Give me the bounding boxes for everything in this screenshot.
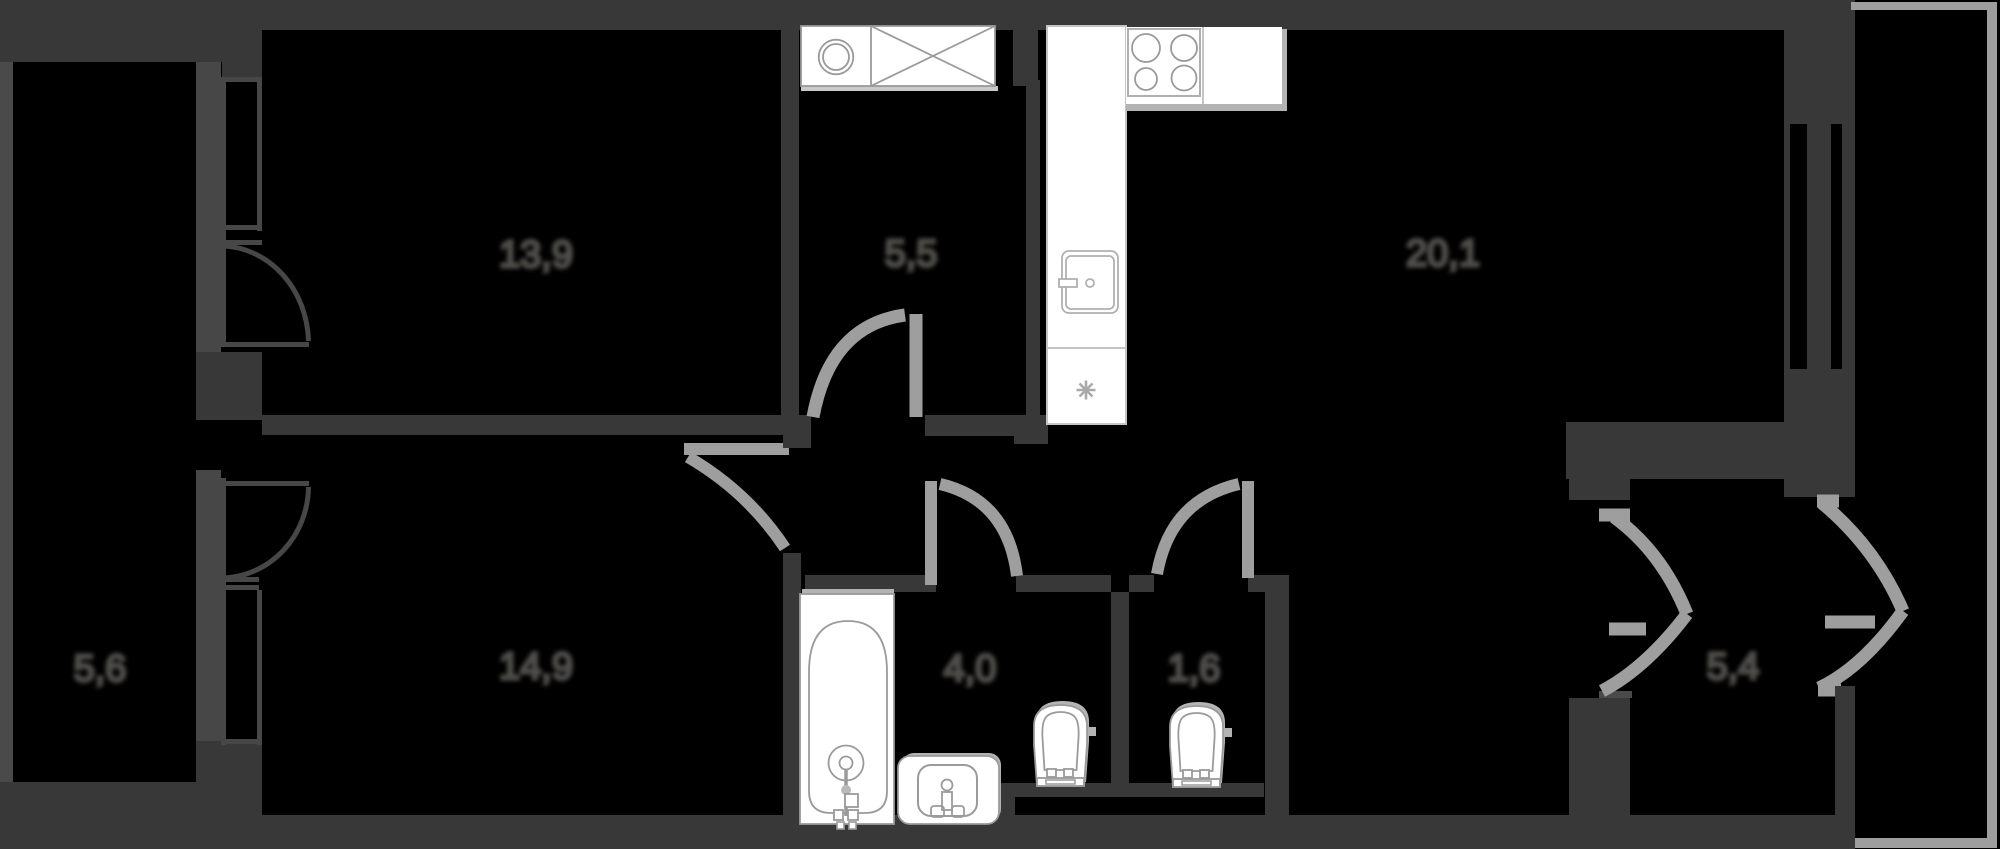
svg-text:5,6: 5,6 [74, 648, 127, 690]
svg-text:20,1: 20,1 [1406, 233, 1480, 275]
svg-text:1,6: 1,6 [1168, 648, 1221, 690]
svg-text:5,5: 5,5 [885, 233, 938, 275]
svg-text:5,4: 5,4 [1707, 646, 1760, 688]
svg-text:4,0: 4,0 [944, 648, 997, 690]
svg-text:14,9: 14,9 [499, 646, 573, 688]
svg-text:13,9: 13,9 [499, 234, 573, 276]
